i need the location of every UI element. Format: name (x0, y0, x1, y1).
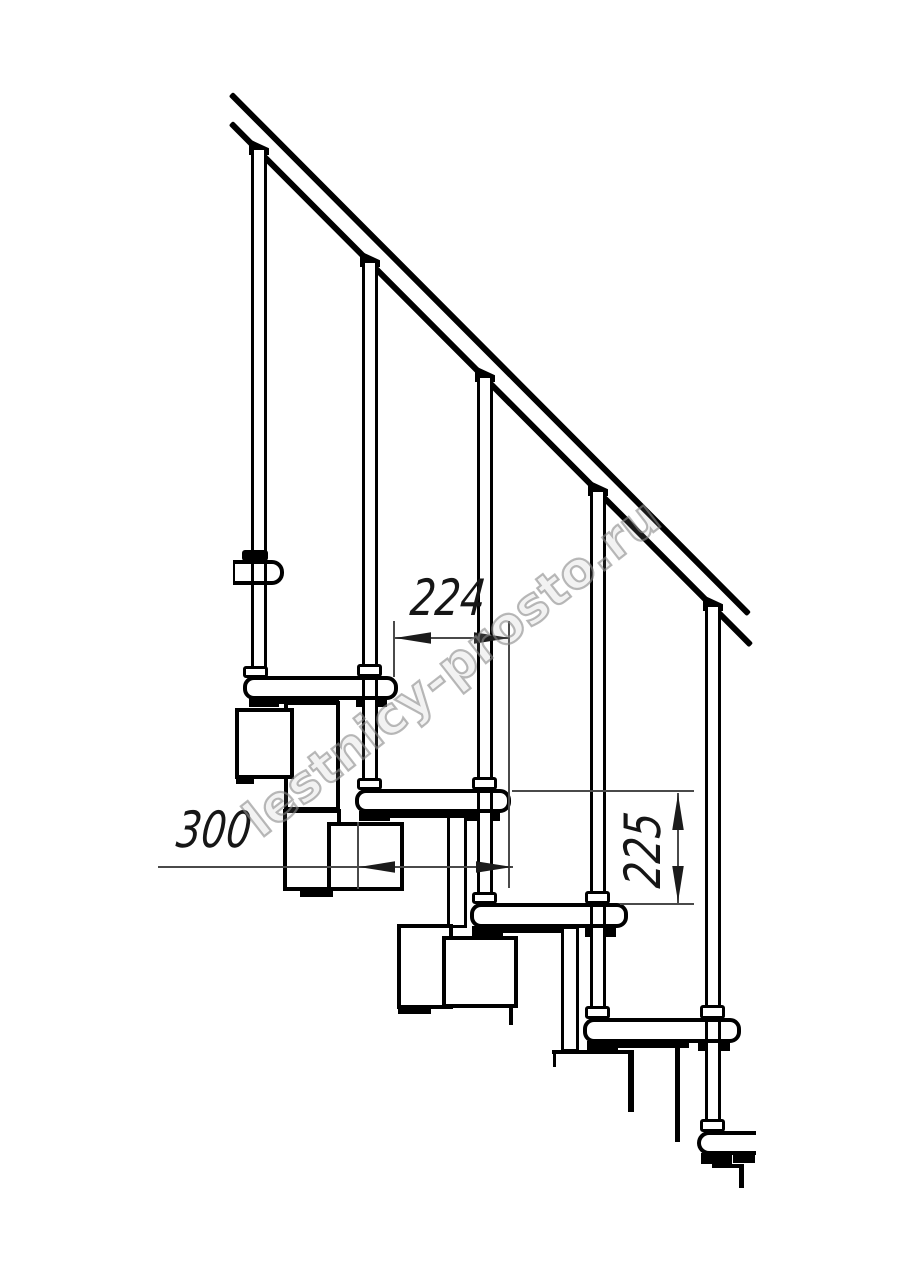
baluster-1 (251, 150, 267, 668)
stringer-tube (561, 926, 579, 1052)
baluster-collar (700, 1005, 725, 1019)
baluster-collar (585, 891, 610, 904)
staircase-technical-drawing: 224 300 225 lestnicy-prosto.ru (0, 0, 914, 1280)
baluster-collar (242, 550, 268, 561)
module-mount-tab (398, 1007, 431, 1014)
baluster-collar (243, 666, 268, 678)
dimension-label-rise: 225 (619, 808, 669, 891)
stringer-module (442, 936, 518, 1008)
extension-line (512, 790, 694, 792)
baluster-collar (700, 1119, 725, 1132)
stringer-tube (447, 812, 467, 928)
tread-1 (233, 560, 284, 585)
arrowhead-up-icon (672, 794, 684, 830)
cut-line (553, 1054, 556, 1067)
tread-3 (355, 789, 511, 813)
arrowhead-right-icon (476, 861, 512, 873)
module-mount-tab (300, 889, 333, 897)
dimension-line-300 (158, 866, 513, 868)
stringer-module (327, 822, 404, 891)
baluster-collar (472, 777, 497, 790)
arrowhead-down-icon (672, 866, 684, 902)
cut-line (509, 1007, 513, 1025)
baluster-collar (585, 1006, 610, 1019)
tread-6 (697, 1131, 756, 1155)
tread-4 (470, 903, 628, 928)
baluster-collar (472, 892, 497, 904)
cut-line (675, 1044, 680, 1142)
cut-line (739, 1164, 744, 1188)
baluster-5 (705, 607, 721, 1121)
cut-line (628, 1053, 634, 1112)
extension-line (620, 903, 694, 905)
extension-line (357, 822, 359, 889)
tread-5 (583, 1018, 741, 1043)
